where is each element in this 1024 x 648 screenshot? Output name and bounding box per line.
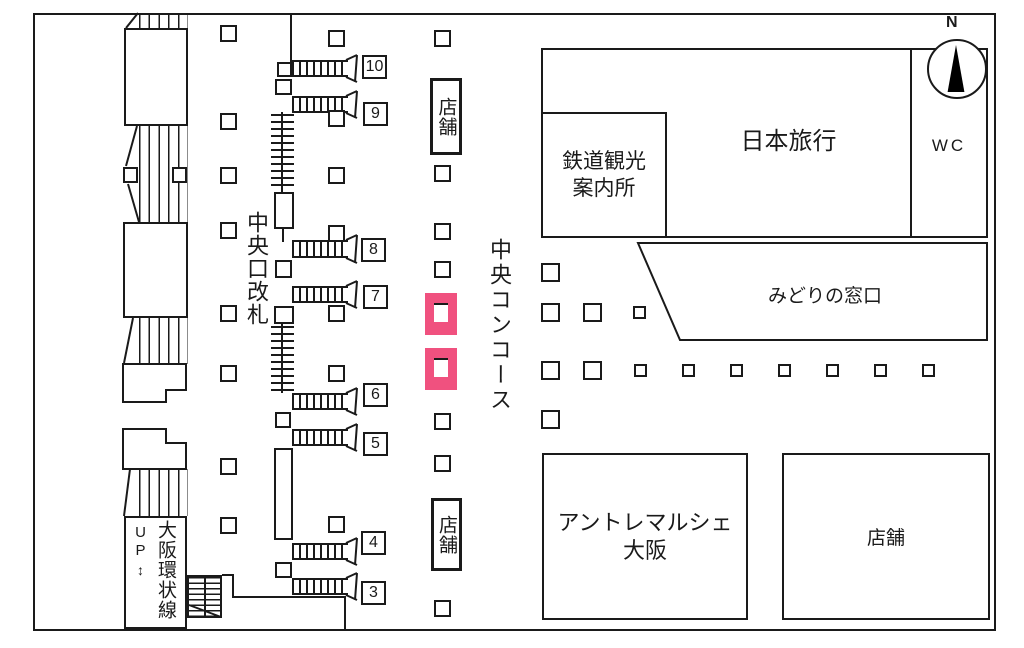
pillar-square	[583, 303, 602, 322]
shop-bottom-right-label: 店舗	[867, 523, 905, 550]
pillar-square	[634, 364, 647, 377]
platform-structure	[123, 222, 188, 318]
platform-number-3: 3	[361, 581, 386, 605]
pillar-square	[434, 303, 448, 322]
osaka-loop-line-stair-box: UP ↕ 大阪環状線	[124, 516, 187, 629]
pillar-square	[328, 225, 345, 242]
platform-number-7: 7	[363, 285, 388, 309]
ticket-gate-comb	[271, 114, 294, 190]
pillar-square	[434, 30, 451, 47]
midori-madoguchi-label: みどりの窓口	[745, 281, 905, 308]
gate-box	[274, 306, 294, 324]
gate-box	[275, 562, 292, 578]
platform-number-5: 5	[363, 432, 388, 456]
up-label: UP	[132, 524, 149, 560]
pillar-square	[874, 364, 887, 377]
station-floor-map: UP ↕ 大阪環状線 中央口改札 10 9 8 7 6 5 4 3	[0, 0, 1024, 648]
pillar-square	[328, 305, 345, 322]
pillar-square	[220, 365, 237, 382]
rail-tourist-info-line1: 鉄道観光	[562, 148, 646, 175]
stair-ramp-10	[292, 60, 348, 77]
pillar-square	[328, 365, 345, 382]
pillar-square	[778, 364, 791, 377]
gate-box	[275, 412, 291, 428]
pillar-square	[434, 165, 451, 182]
pillar-square	[541, 263, 560, 282]
compass-icon	[927, 39, 987, 99]
pillar-square	[220, 305, 237, 322]
pillar-square	[123, 167, 138, 183]
staircase	[187, 575, 222, 618]
platform-number-8: 8	[361, 238, 386, 262]
entree-marche-line2: 大阪	[623, 537, 667, 565]
gate-booth	[274, 192, 294, 229]
up-label-column: UP ↕	[132, 524, 149, 627]
pillar-square	[434, 455, 451, 472]
stair-ramp-8	[292, 240, 348, 258]
wc-label: WC	[910, 136, 988, 156]
ticket-gate-comb	[271, 326, 294, 391]
osaka-loop-line-label: 大阪環状線	[152, 520, 179, 627]
platform-number-4: 4	[361, 531, 386, 555]
track-lines	[139, 13, 188, 29]
rail-tourist-info-box: 鉄道観光 案内所	[541, 112, 667, 238]
shop-kiosk-bottom-label: 店舗	[433, 515, 460, 555]
stair-ramp-5	[292, 429, 348, 446]
gate-booth	[274, 448, 293, 540]
platform-number-10: 10	[362, 55, 387, 79]
entree-marche-line1: アントレマルシェ	[557, 509, 732, 537]
pillar-square	[220, 25, 237, 42]
pillar-square	[328, 110, 345, 127]
platform-number-9: 9	[363, 102, 388, 126]
platform-number-6: 6	[363, 383, 388, 407]
pillar-square	[328, 516, 345, 533]
pillar-square	[826, 364, 839, 377]
stair-ramp-6	[292, 393, 348, 410]
gate-box	[275, 79, 292, 95]
pillar-square	[730, 364, 743, 377]
track-lines	[139, 318, 188, 364]
pillar-square	[922, 364, 935, 377]
up-down-arrow-icon: ↕	[137, 562, 144, 578]
rail-tourist-info-line2: 案内所	[573, 175, 636, 202]
gate-box	[275, 260, 292, 278]
compass-north-label: N	[946, 14, 958, 32]
shop-kiosk-top: 店舗	[430, 78, 462, 155]
pillar-square	[434, 413, 451, 430]
entree-marche-box: アントレマルシェ 大阪	[542, 453, 748, 620]
shop-kiosk-bottom: 店舗	[431, 498, 462, 571]
pillar-square	[328, 30, 345, 47]
pillar-square	[541, 303, 560, 322]
highlighted-location-1	[425, 293, 457, 335]
gate-wall-line	[290, 13, 292, 62]
stair-ramp-4	[292, 543, 348, 560]
pillar-square	[583, 361, 602, 380]
stair-ramp-3	[292, 578, 348, 595]
pillar-square	[541, 410, 560, 429]
pillar-square	[434, 600, 451, 617]
highlighted-location-2	[425, 348, 457, 390]
compass-needle-icon	[942, 45, 970, 92]
pillar-square	[682, 364, 695, 377]
gate-box	[277, 62, 292, 77]
pillar-square	[633, 306, 646, 319]
pillar-square	[541, 361, 560, 380]
pillar-square	[434, 358, 448, 377]
gate-wall-line	[282, 228, 284, 242]
central-gate-label: 中央口改札	[240, 211, 272, 326]
platform-structure	[124, 28, 188, 126]
pillar-square	[220, 458, 237, 475]
pillar-square	[220, 167, 237, 184]
pillar-square	[434, 261, 451, 278]
pillar-square	[220, 517, 237, 534]
shop-kiosk-top-label: 店舗	[433, 97, 460, 137]
pillar-square	[434, 223, 451, 240]
nippon-travel-label: 日本旅行	[667, 121, 910, 156]
central-concourse-label: 中央コンコース	[483, 238, 515, 413]
shop-box-bottom-right: 店舗	[782, 453, 990, 620]
track-lines	[139, 469, 188, 516]
pillar-square	[220, 113, 237, 130]
pillar-square	[220, 222, 237, 239]
pillar-square	[172, 167, 187, 183]
stair-ramp-7	[292, 286, 348, 303]
pillar-square	[328, 167, 345, 184]
